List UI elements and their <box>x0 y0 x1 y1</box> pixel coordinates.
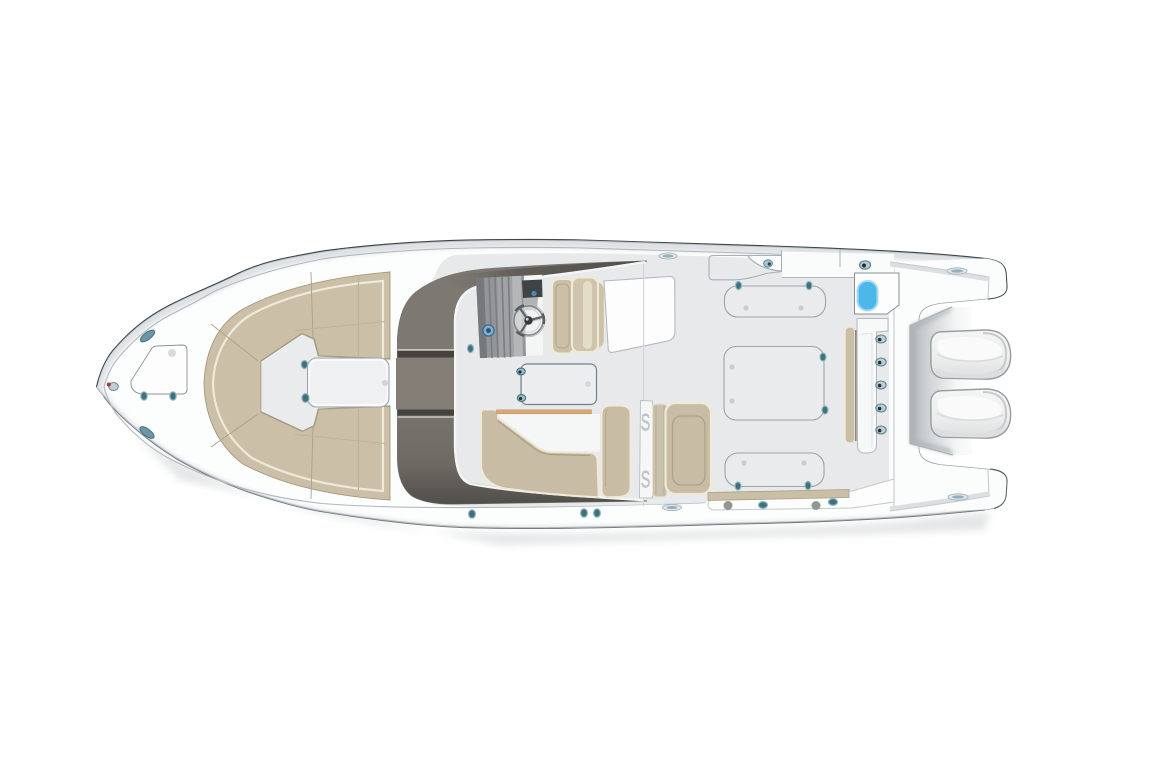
svg-text:S: S <box>641 467 651 494</box>
svg-text:S: S <box>641 410 651 437</box>
